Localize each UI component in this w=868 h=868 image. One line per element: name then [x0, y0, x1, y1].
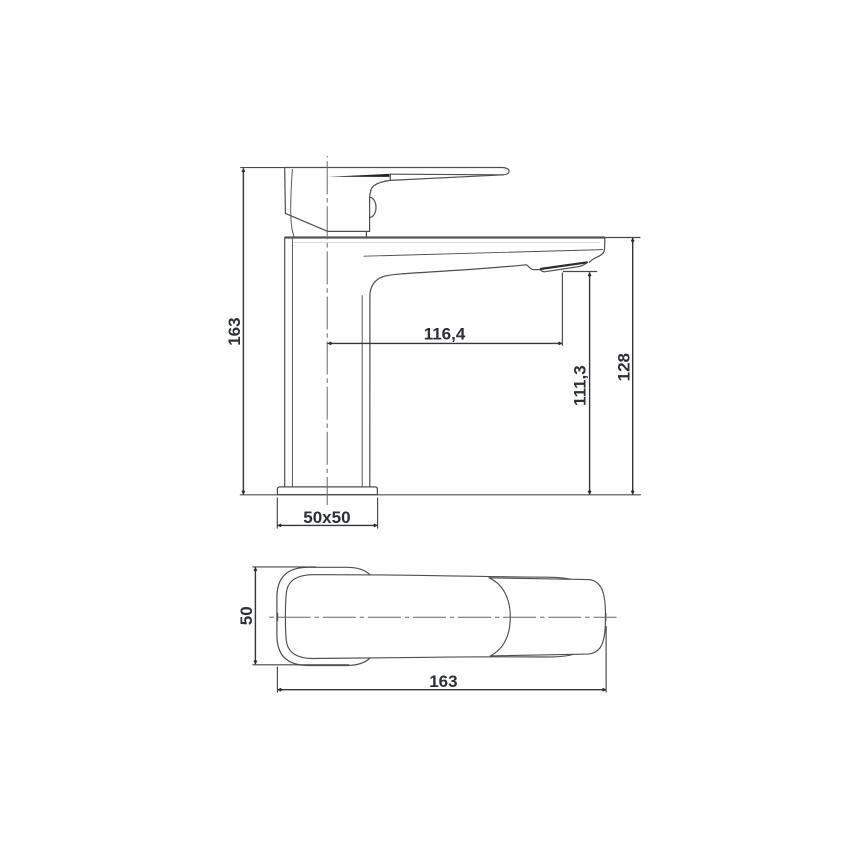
svg-text:50: 50 — [237, 606, 256, 625]
svg-text:116,4: 116,4 — [424, 325, 466, 344]
svg-text:128: 128 — [615, 353, 634, 381]
svg-text:111,3: 111,3 — [571, 365, 590, 406]
svg-text:50x50: 50x50 — [303, 508, 350, 527]
svg-text:163: 163 — [225, 317, 244, 345]
svg-text:163: 163 — [429, 672, 457, 691]
